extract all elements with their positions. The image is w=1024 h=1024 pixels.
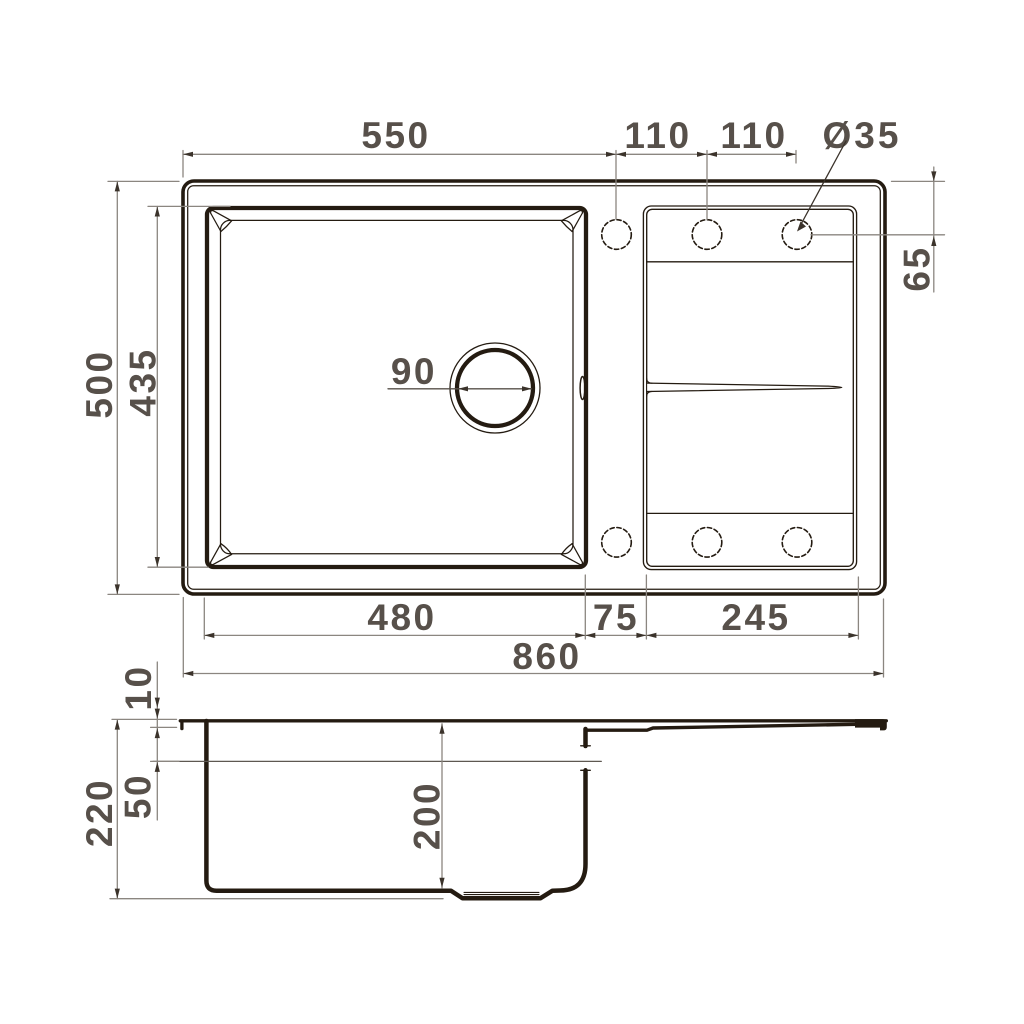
svg-text:110: 110 bbox=[624, 115, 691, 156]
svg-text:245: 245 bbox=[721, 597, 790, 638]
svg-text:65: 65 bbox=[897, 245, 938, 291]
svg-text:90: 90 bbox=[391, 351, 437, 392]
svg-text:50: 50 bbox=[118, 773, 159, 819]
svg-text:500: 500 bbox=[79, 349, 120, 418]
svg-text:110: 110 bbox=[720, 115, 787, 156]
svg-text:435: 435 bbox=[123, 347, 164, 416]
svg-text:550: 550 bbox=[361, 115, 430, 156]
svg-text:Ø35: Ø35 bbox=[823, 115, 902, 156]
svg-text:10: 10 bbox=[118, 664, 159, 710]
svg-text:200: 200 bbox=[407, 781, 448, 850]
svg-text:860: 860 bbox=[512, 636, 581, 677]
svg-text:480: 480 bbox=[367, 597, 436, 638]
svg-text:220: 220 bbox=[79, 778, 120, 847]
svg-text:75: 75 bbox=[593, 597, 639, 638]
